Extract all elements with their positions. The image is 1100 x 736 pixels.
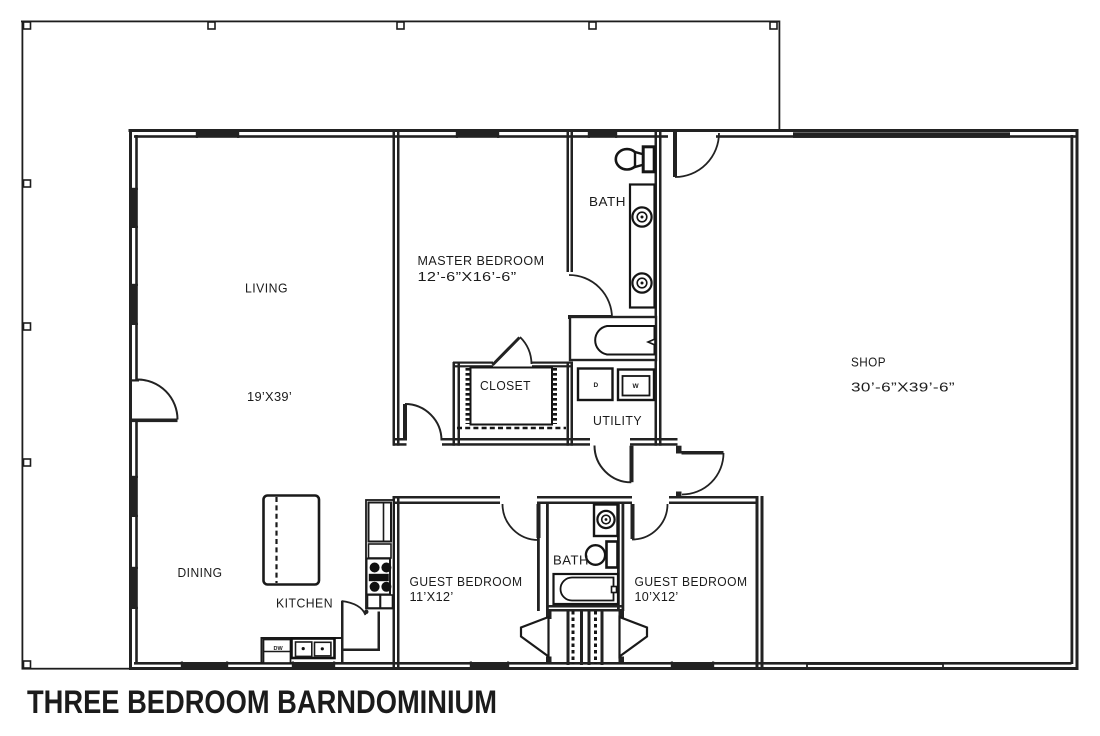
svg-text:SHOP: SHOP <box>851 355 886 370</box>
svg-text:THREE BEDROOM BARNDOMINIUM: THREE BEDROOM BARNDOMINIUM <box>27 684 497 720</box>
svg-text:GUEST BEDROOM: GUEST BEDROOM <box>635 574 748 589</box>
svg-text:W: W <box>633 383 640 390</box>
svg-text:BATH: BATH <box>553 553 589 568</box>
svg-text:LIVING: LIVING <box>245 281 288 296</box>
svg-text:UTILITY: UTILITY <box>593 413 642 428</box>
svg-text:19’X39’: 19’X39’ <box>247 389 292 404</box>
svg-text:BATH: BATH <box>589 194 626 209</box>
svg-text:KITCHEN: KITCHEN <box>276 596 333 611</box>
svg-text:12’-6”X16’-6”: 12’-6”X16’-6” <box>418 269 517 284</box>
svg-text:DINING: DINING <box>178 565 223 580</box>
svg-text:CLOSET: CLOSET <box>480 378 531 393</box>
svg-text:GUEST BEDROOM: GUEST BEDROOM <box>410 574 523 589</box>
svg-text:10’X12’: 10’X12’ <box>635 589 679 604</box>
svg-text:D: D <box>594 382 599 389</box>
svg-text:DW: DW <box>274 646 284 652</box>
svg-text:MASTER BEDROOM: MASTER BEDROOM <box>418 253 545 268</box>
svg-text:30’-6”X39’-6”: 30’-6”X39’-6” <box>851 380 955 395</box>
svg-text:11’X12’: 11’X12’ <box>410 589 454 604</box>
